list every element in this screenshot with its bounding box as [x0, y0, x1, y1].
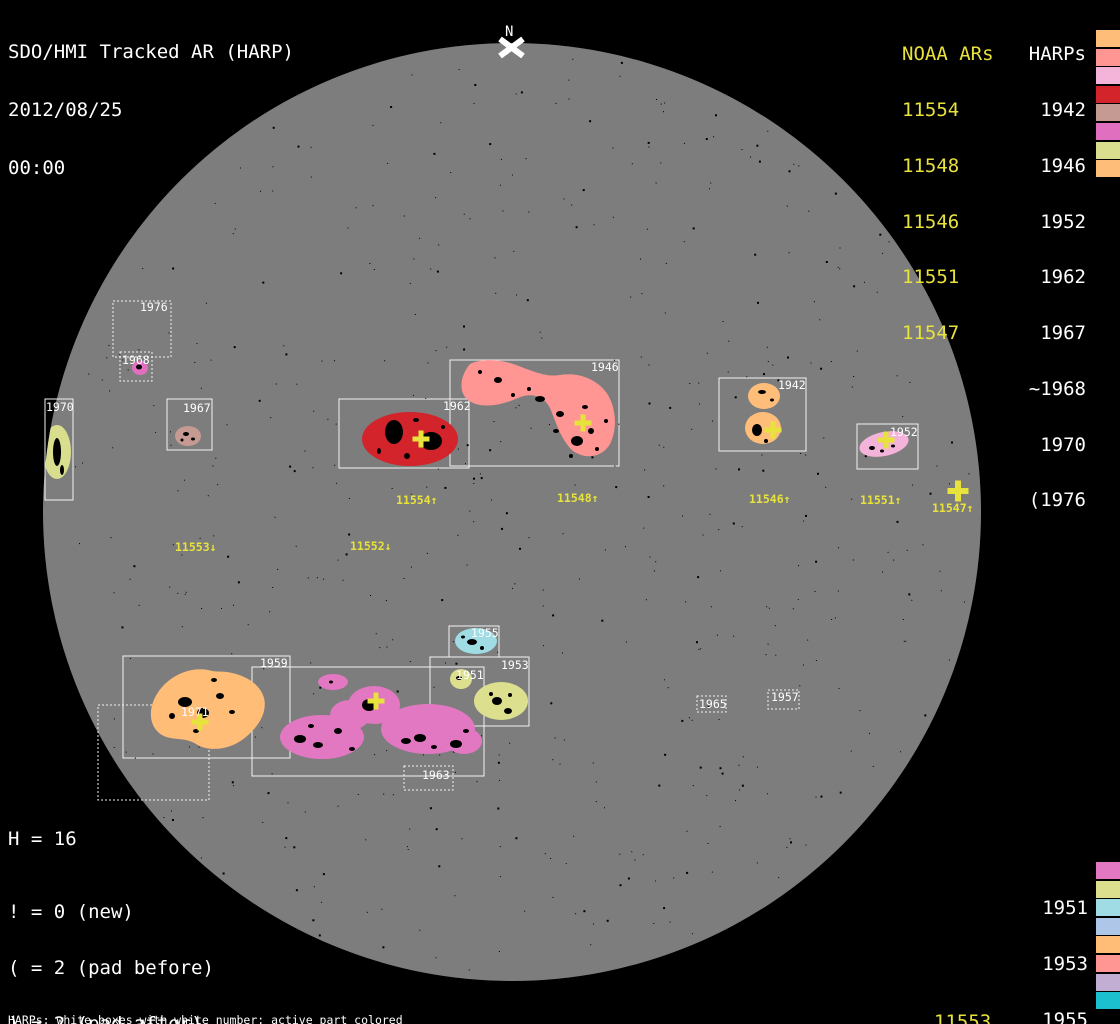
harp-label-1976: 1976: [140, 300, 168, 314]
harp-item: (1976: [1008, 491, 1086, 510]
harp-label-1957: 1957: [771, 690, 799, 704]
swatch-harp-1970: [1096, 142, 1120, 159]
swatch-harp-1951: [1096, 862, 1120, 879]
noaa-disk-label-11548: 11548↑: [557, 491, 599, 505]
noaa-item: 11546: [902, 213, 994, 232]
swatch-harp-1967: [1096, 104, 1120, 121]
flag-legend-line: ( = 2 (pad before): [8, 959, 225, 978]
solar-disk-view: 1976 1968 1970 1967 1962 1946 1942 1952 …: [0, 0, 1120, 1024]
harp-label-1959: 1959: [260, 656, 288, 670]
blob-harp-1967: [175, 426, 201, 446]
harp-label-1968: 1968: [122, 353, 150, 367]
harps-header: HARPs: [1008, 45, 1086, 64]
harp-item: 1970: [1008, 436, 1086, 455]
harp-label-1942: 1942: [778, 378, 806, 392]
north-label: N: [505, 24, 513, 40]
swatch-harp-1963: [1096, 955, 1120, 972]
harp-label-1953: 1953: [501, 658, 529, 672]
harp-label-1955: 1955: [471, 626, 499, 640]
harp-column-bottom: 1951 1953 1955 )1957 1959 ?1963 )1965 (1…: [1008, 862, 1088, 1024]
swatch-harp-1952: [1096, 67, 1120, 84]
noaa-disk-label-11546: 11546↑: [749, 492, 791, 506]
harp-label-1965: 1965: [699, 697, 727, 711]
swatch-harp-1959: [1096, 936, 1120, 953]
swatch-harp-1976: [1096, 160, 1120, 177]
title-block: SDO/HMI Tracked AR (HARP) 2012/08/25 00:…: [8, 5, 294, 216]
footnote-harps: HARPs: white boxes with white number; ac…: [8, 1014, 451, 1024]
blob-harp-1962: [362, 412, 458, 466]
noaa-header: NOAA ARs: [902, 45, 994, 64]
harp-label-1967: 1967: [183, 401, 211, 415]
swatch-harp-1946: [1096, 49, 1120, 66]
harp-item: ~1968: [1008, 380, 1086, 399]
harp-item: 1952: [1008, 213, 1086, 232]
app-title: SDO/HMI Tracked AR (HARP): [8, 43, 294, 62]
harp-item: 1946: [1008, 157, 1086, 176]
noaa-disk-label-11554: 11554↑: [396, 493, 438, 507]
time-label: 00:00: [8, 159, 294, 178]
date-label: 2012/08/25: [8, 101, 294, 120]
harp-item: 1967: [1008, 324, 1086, 343]
noaa-disk-label-11552: 11552↓: [350, 539, 392, 553]
swatch-harp-1953: [1096, 881, 1120, 898]
noaa-item: 11553: [934, 1013, 991, 1024]
noaa-disk-label-11553: 11553↓: [175, 540, 217, 554]
noaa-disk-label-11547: 11547↑: [932, 501, 974, 515]
noaa-item: 11548: [902, 157, 994, 176]
flag-legend-line: ! = 0 (new): [8, 903, 225, 922]
swatch-harp-1968: [1096, 123, 1120, 140]
blob-harp-1942-north: [748, 383, 780, 409]
harp-label-1962: 1962: [443, 399, 471, 413]
swatch-harp-1957: [1096, 918, 1120, 935]
harp-item: 1942: [1008, 101, 1086, 120]
noaa-item: 11547: [902, 324, 994, 343]
harp-label-1970: 1970: [46, 400, 74, 414]
harp-swatches-bottom: [1096, 862, 1120, 1011]
swatch-harp-1965: [1096, 974, 1120, 991]
noaa-disk-label-11551: 11551↑: [860, 493, 902, 507]
harp-swatches-top: [1096, 30, 1120, 179]
noaa-item: 11551: [902, 268, 994, 287]
harp-column-top: HARPs 1942 1946 1952 1962 1967 ~1968 197…: [1008, 8, 1086, 547]
swatch-harp-1955: [1096, 899, 1120, 916]
noaa-column-top: NOAA ARs 11554 11548 11546 11551 11547: [902, 8, 994, 380]
harp-count: H = 16: [8, 830, 77, 849]
harp-item: 1953: [1008, 955, 1088, 974]
harp-label-1952: 1952: [890, 425, 918, 439]
harp-item: 1951: [1008, 899, 1088, 918]
harp-label-1951: 1951: [456, 668, 484, 682]
noaa-column-bottom: 11553 11552: [934, 976, 991, 1024]
swatch-harp-1942: [1096, 30, 1120, 47]
noaa-item: 11554: [902, 101, 994, 120]
swatch-harp-1962: [1096, 86, 1120, 103]
harp-label-1946: 1946: [591, 360, 619, 374]
swatch-harp-1971: [1096, 992, 1120, 1009]
harp-item: 1955: [1008, 1011, 1088, 1024]
footnotes: HARPs: white boxes with white number; ac…: [8, 990, 451, 1024]
harp-label-1971: 1971: [181, 705, 209, 719]
harp-label-1963: 1963: [422, 768, 450, 782]
harp-item: 1962: [1008, 268, 1086, 287]
